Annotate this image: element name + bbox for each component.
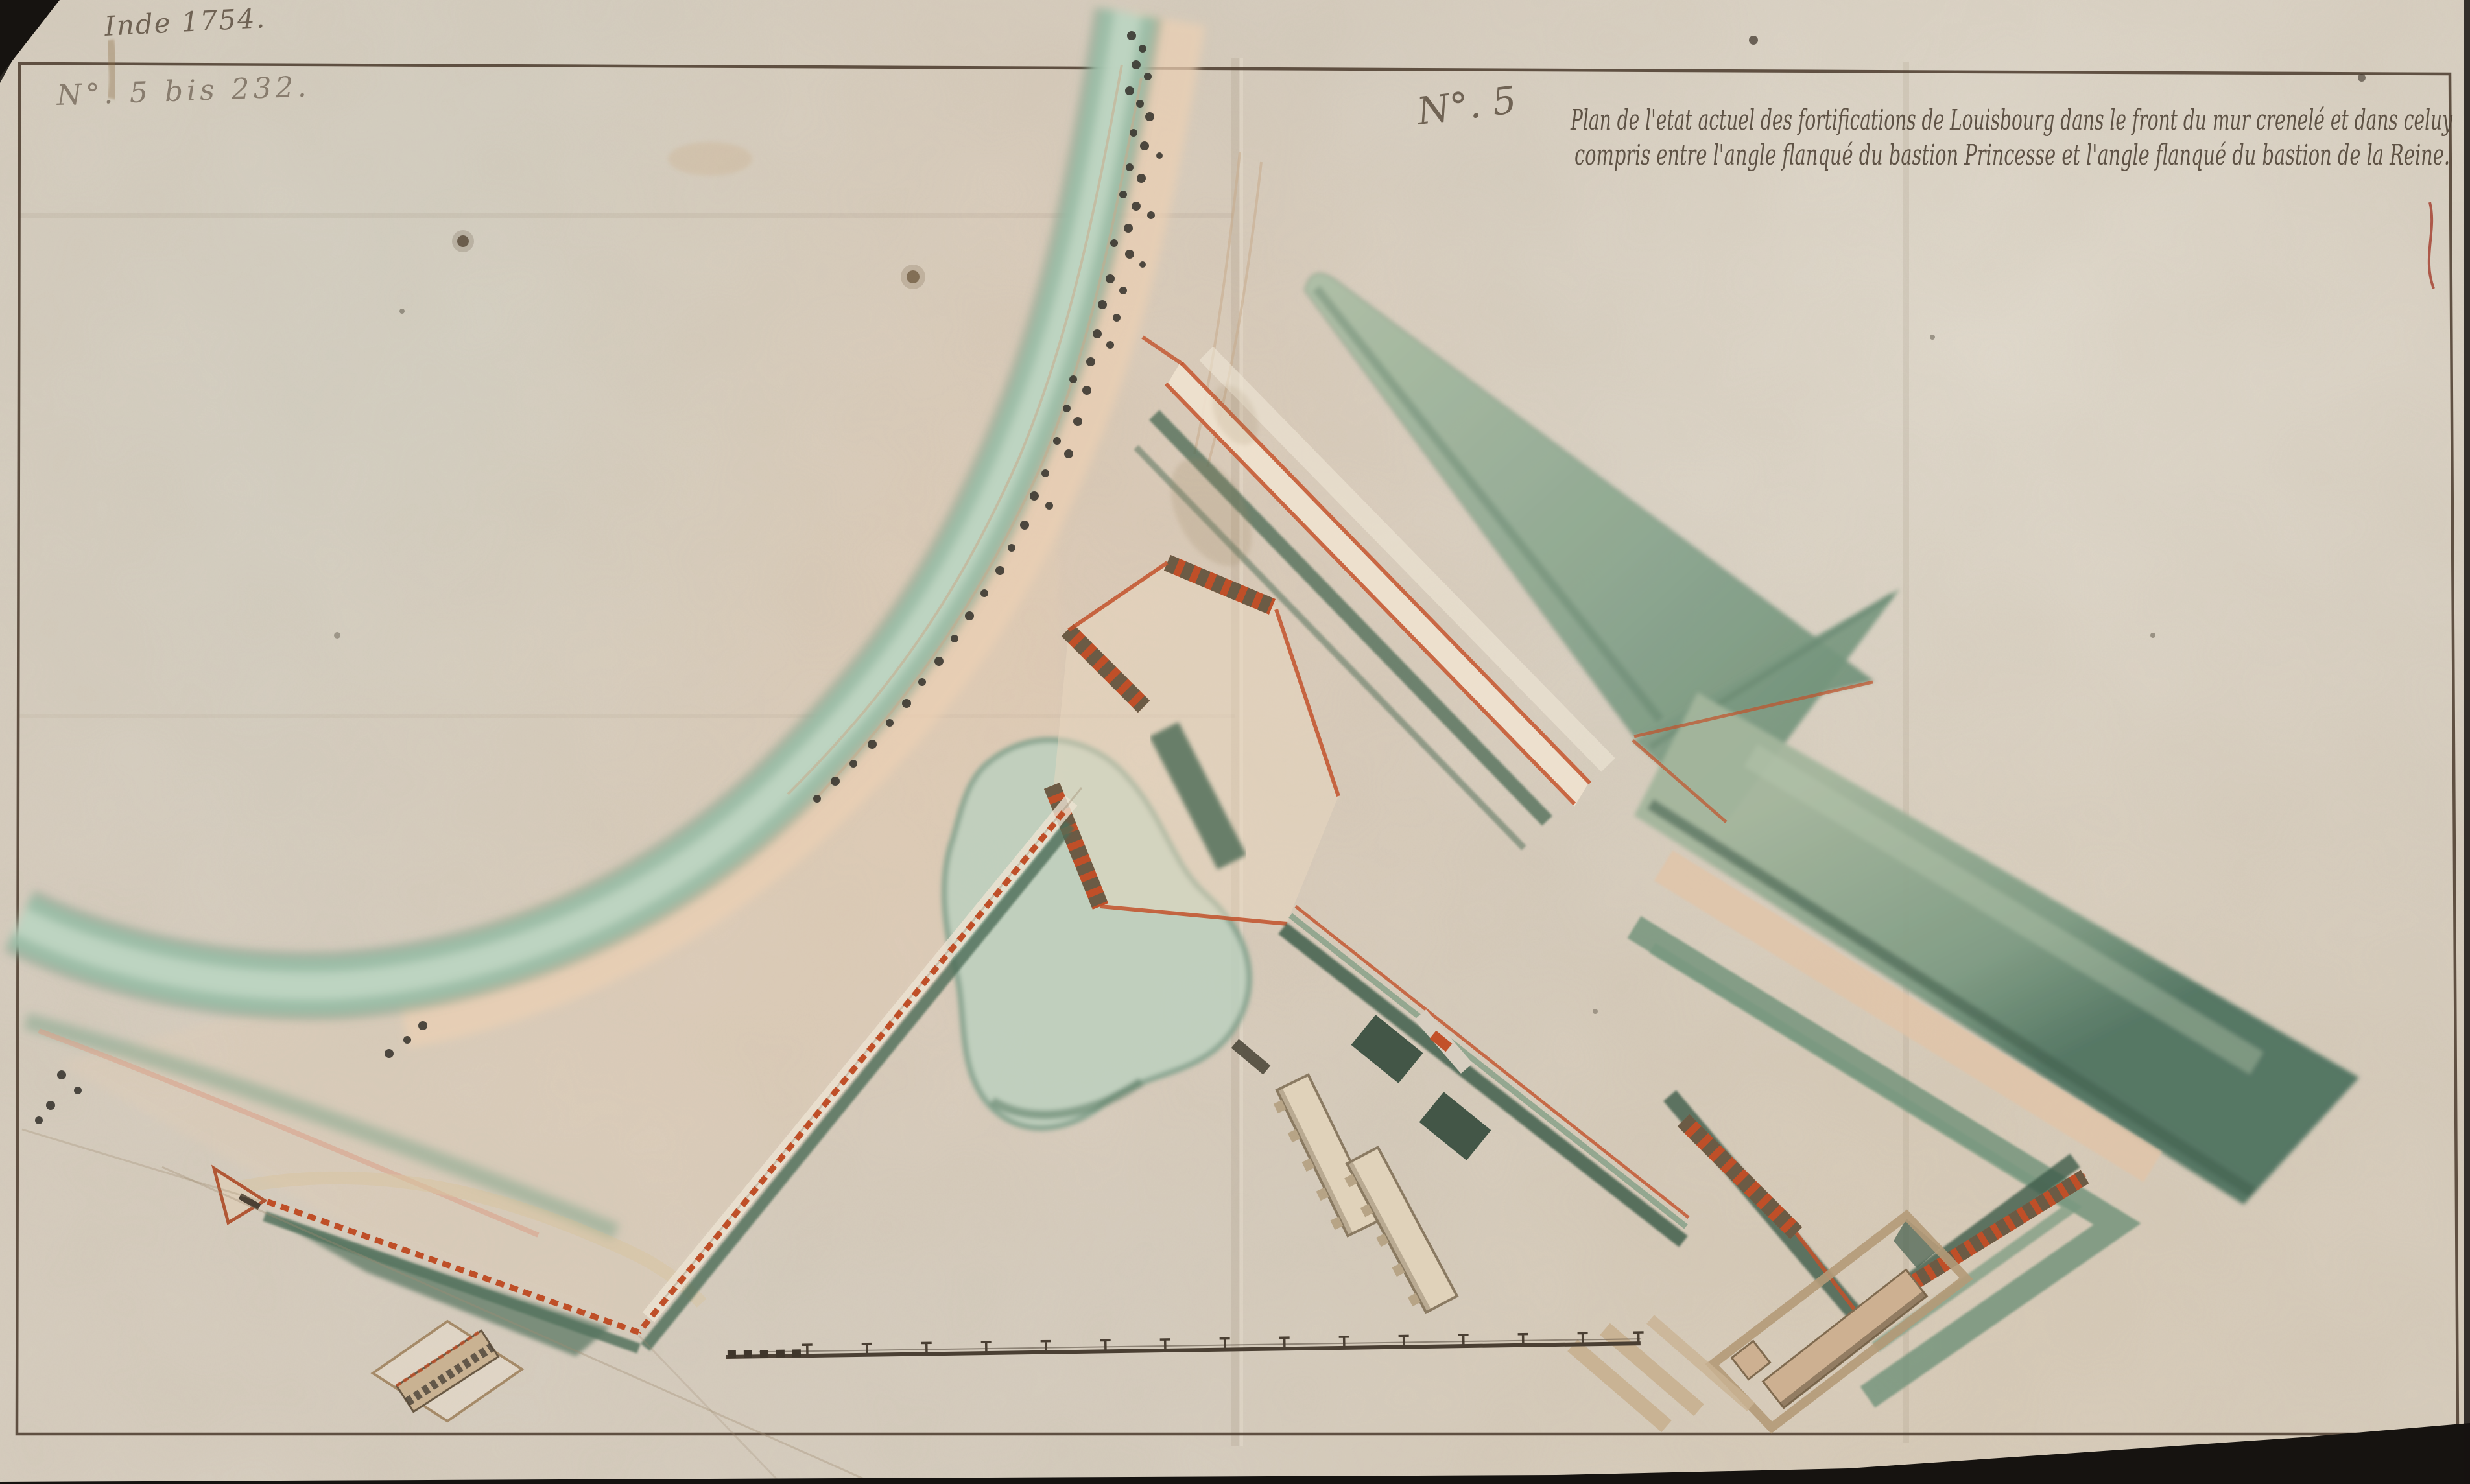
map-title-line2: compris entre l'angle flanqué du bastion… (1574, 139, 2450, 172)
map-title-line1: Plan de l'etat actuel des fortifications… (1570, 104, 2452, 137)
louisbourg-plan-svg: Inde 1754. N°. 5 bis 232. N°. 5 Plan de … (0, 0, 2470, 1484)
scanned-map-photo: Inde 1754. N°. 5 bis 232. N°. 5 Plan de … (0, 0, 2470, 1484)
